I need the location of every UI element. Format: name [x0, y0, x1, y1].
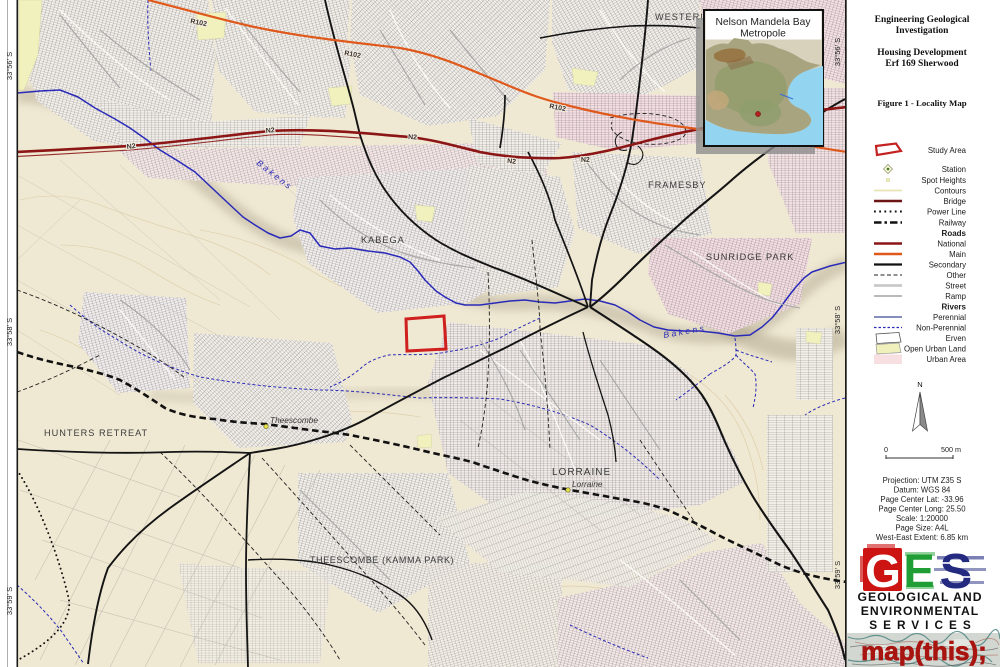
svg-text:Figure 1 - Locality Map: Figure 1 - Locality Map [877, 98, 966, 108]
svg-text:HUNTERS RETREAT: HUNTERS RETREAT [44, 428, 148, 438]
svg-text:Spot Heights: Spot Heights [921, 176, 966, 185]
svg-text:Ramp: Ramp [945, 292, 966, 301]
svg-text:Page Center Lat: -33.96: Page Center Lat: -33.96 [880, 495, 963, 504]
svg-text:Erven: Erven [946, 334, 966, 343]
svg-text:Non-Perennial: Non-Perennial [916, 324, 966, 333]
svg-text:33°59' S: 33°59' S [833, 561, 842, 589]
svg-text:map(this);: map(this); [861, 636, 987, 666]
svg-text:KABEGA: KABEGA [361, 235, 405, 245]
svg-text:Engineering Geological: Engineering Geological [875, 15, 970, 25]
svg-text:Metropole: Metropole [740, 29, 786, 40]
svg-text:FRAMESBY: FRAMESBY [648, 180, 707, 190]
svg-text:Lorraine: Lorraine [572, 479, 603, 489]
svg-text:N2: N2 [126, 143, 136, 151]
svg-text:Scale: 1:20000: Scale: 1:20000 [896, 514, 949, 523]
svg-text:Rivers: Rivers [942, 303, 967, 312]
svg-text:Nelson Mandela Bay: Nelson Mandela Bay [715, 17, 811, 28]
svg-text:Open Urban Land: Open Urban Land [904, 345, 966, 354]
svg-text:Perennial: Perennial [933, 313, 966, 322]
svg-text:Other: Other [947, 271, 967, 280]
svg-text:Roads: Roads [942, 229, 967, 238]
svg-text:Urban Area: Urban Area [927, 355, 967, 364]
svg-text:Projection: UTM Z35 S: Projection: UTM Z35 S [883, 476, 962, 485]
svg-text:SUNRIDGE PARK: SUNRIDGE PARK [706, 252, 794, 262]
svg-text:Station: Station [942, 165, 966, 174]
svg-text:500 m: 500 m [941, 445, 961, 454]
svg-text:N2: N2 [581, 157, 590, 164]
svg-text:LORRAINE: LORRAINE [552, 467, 611, 478]
svg-text:Bridge: Bridge [943, 197, 966, 206]
svg-text:Theescombe: Theescombe [270, 415, 318, 425]
svg-text:N2: N2 [408, 134, 417, 141]
svg-text:33°56' S: 33°56' S [5, 52, 14, 80]
svg-text:National: National [937, 240, 966, 249]
svg-text:33°58' S: 33°58' S [5, 318, 14, 346]
svg-text:0: 0 [884, 445, 888, 454]
svg-text:Erf 169 Sherwood: Erf 169 Sherwood [885, 59, 959, 69]
svg-text:N: N [917, 380, 922, 389]
svg-text:West-East Extent: 6.85 km: West-East Extent: 6.85 km [876, 533, 968, 542]
svg-text:Page Size: A4L: Page Size: A4L [895, 524, 949, 533]
svg-text:Railway: Railway [939, 219, 966, 228]
svg-text:Datum: WGS 84: Datum: WGS 84 [894, 486, 951, 495]
svg-text:THEESCOMBE (KAMMA PARK): THEESCOMBE (KAMMA PARK) [310, 555, 454, 565]
svg-text:Secondary: Secondary [929, 261, 966, 270]
svg-text:Main: Main [949, 250, 966, 259]
svg-text:Housing Development: Housing Development [877, 48, 967, 58]
svg-text:SERVICES: SERVICES [869, 618, 976, 632]
svg-text:ENVIRONMENTAL: ENVIRONMENTAL [861, 604, 979, 618]
svg-text:Study Area: Study Area [928, 146, 967, 155]
svg-text:Street: Street [945, 282, 967, 291]
svg-text:33°58' S: 33°58' S [833, 306, 842, 334]
svg-text:N2: N2 [507, 158, 517, 166]
svg-text:Contours: Contours [934, 187, 966, 196]
svg-text:Page Center Long: 25.50: Page Center Long: 25.50 [878, 505, 966, 514]
svg-text:33°59' S: 33°59' S [5, 587, 14, 615]
svg-text:GEOLOGICAL AND: GEOLOGICAL AND [857, 590, 982, 604]
svg-text:Investigation: Investigation [896, 26, 950, 36]
svg-text:Power Line: Power Line [927, 208, 966, 217]
svg-text:N2: N2 [265, 127, 275, 135]
svg-text:33°56' S: 33°56' S [833, 38, 842, 66]
